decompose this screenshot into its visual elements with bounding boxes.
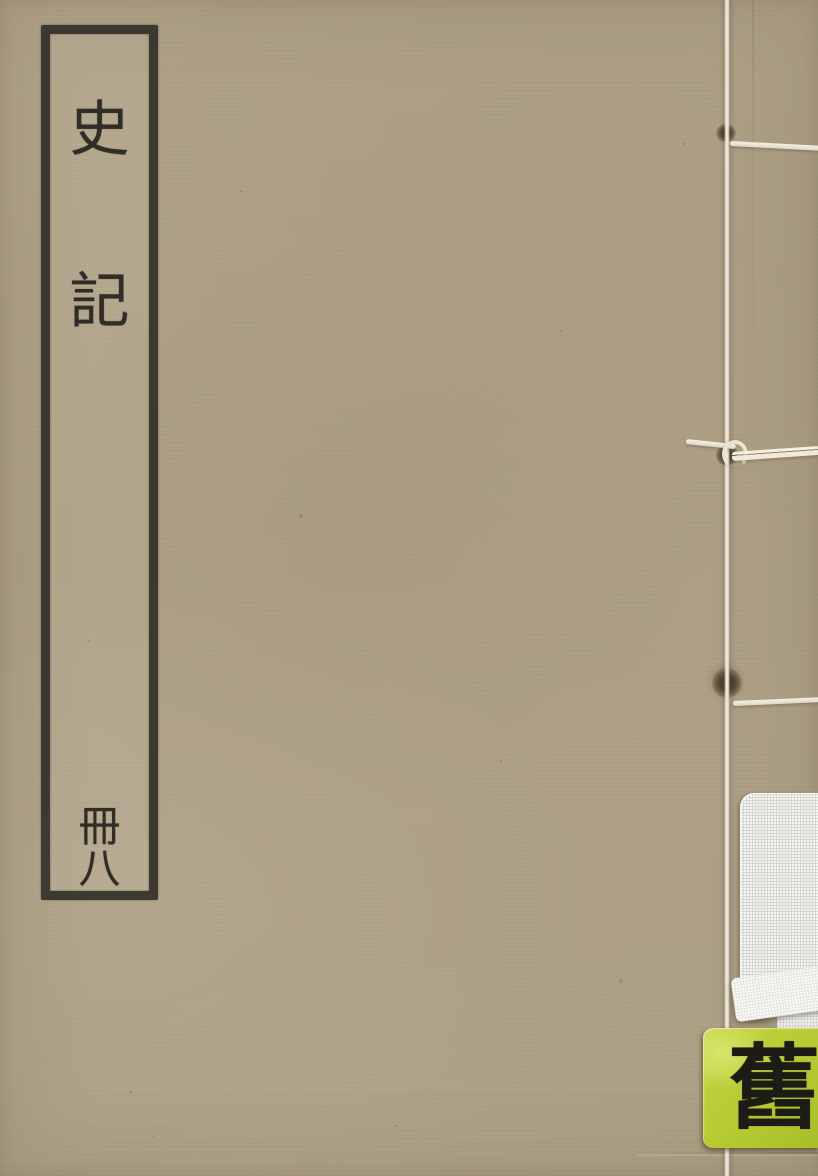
title-char: 史 — [70, 100, 130, 160]
binding-thread-vertical — [724, 0, 730, 1176]
title-label: 史 記 冊 八 — [41, 25, 158, 900]
paper-specks — [130, 1091, 132, 1093]
binding-thread-horizontal — [730, 141, 818, 151]
book-cover: 史 記 冊 八 舊 — [0, 0, 818, 1176]
title-char: 記 — [70, 272, 130, 332]
condition-sticker: 舊 — [703, 1028, 818, 1148]
scanned-book-cover-photo: 史 記 冊 八 舊 — [0, 0, 818, 1176]
volume-char: 八 — [78, 848, 120, 890]
volume-char: 冊 — [78, 806, 120, 848]
sticker-char: 舊 — [728, 1042, 818, 1134]
binding-thread-horizontal — [733, 697, 818, 706]
spine-fold-crease — [752, 0, 754, 420]
